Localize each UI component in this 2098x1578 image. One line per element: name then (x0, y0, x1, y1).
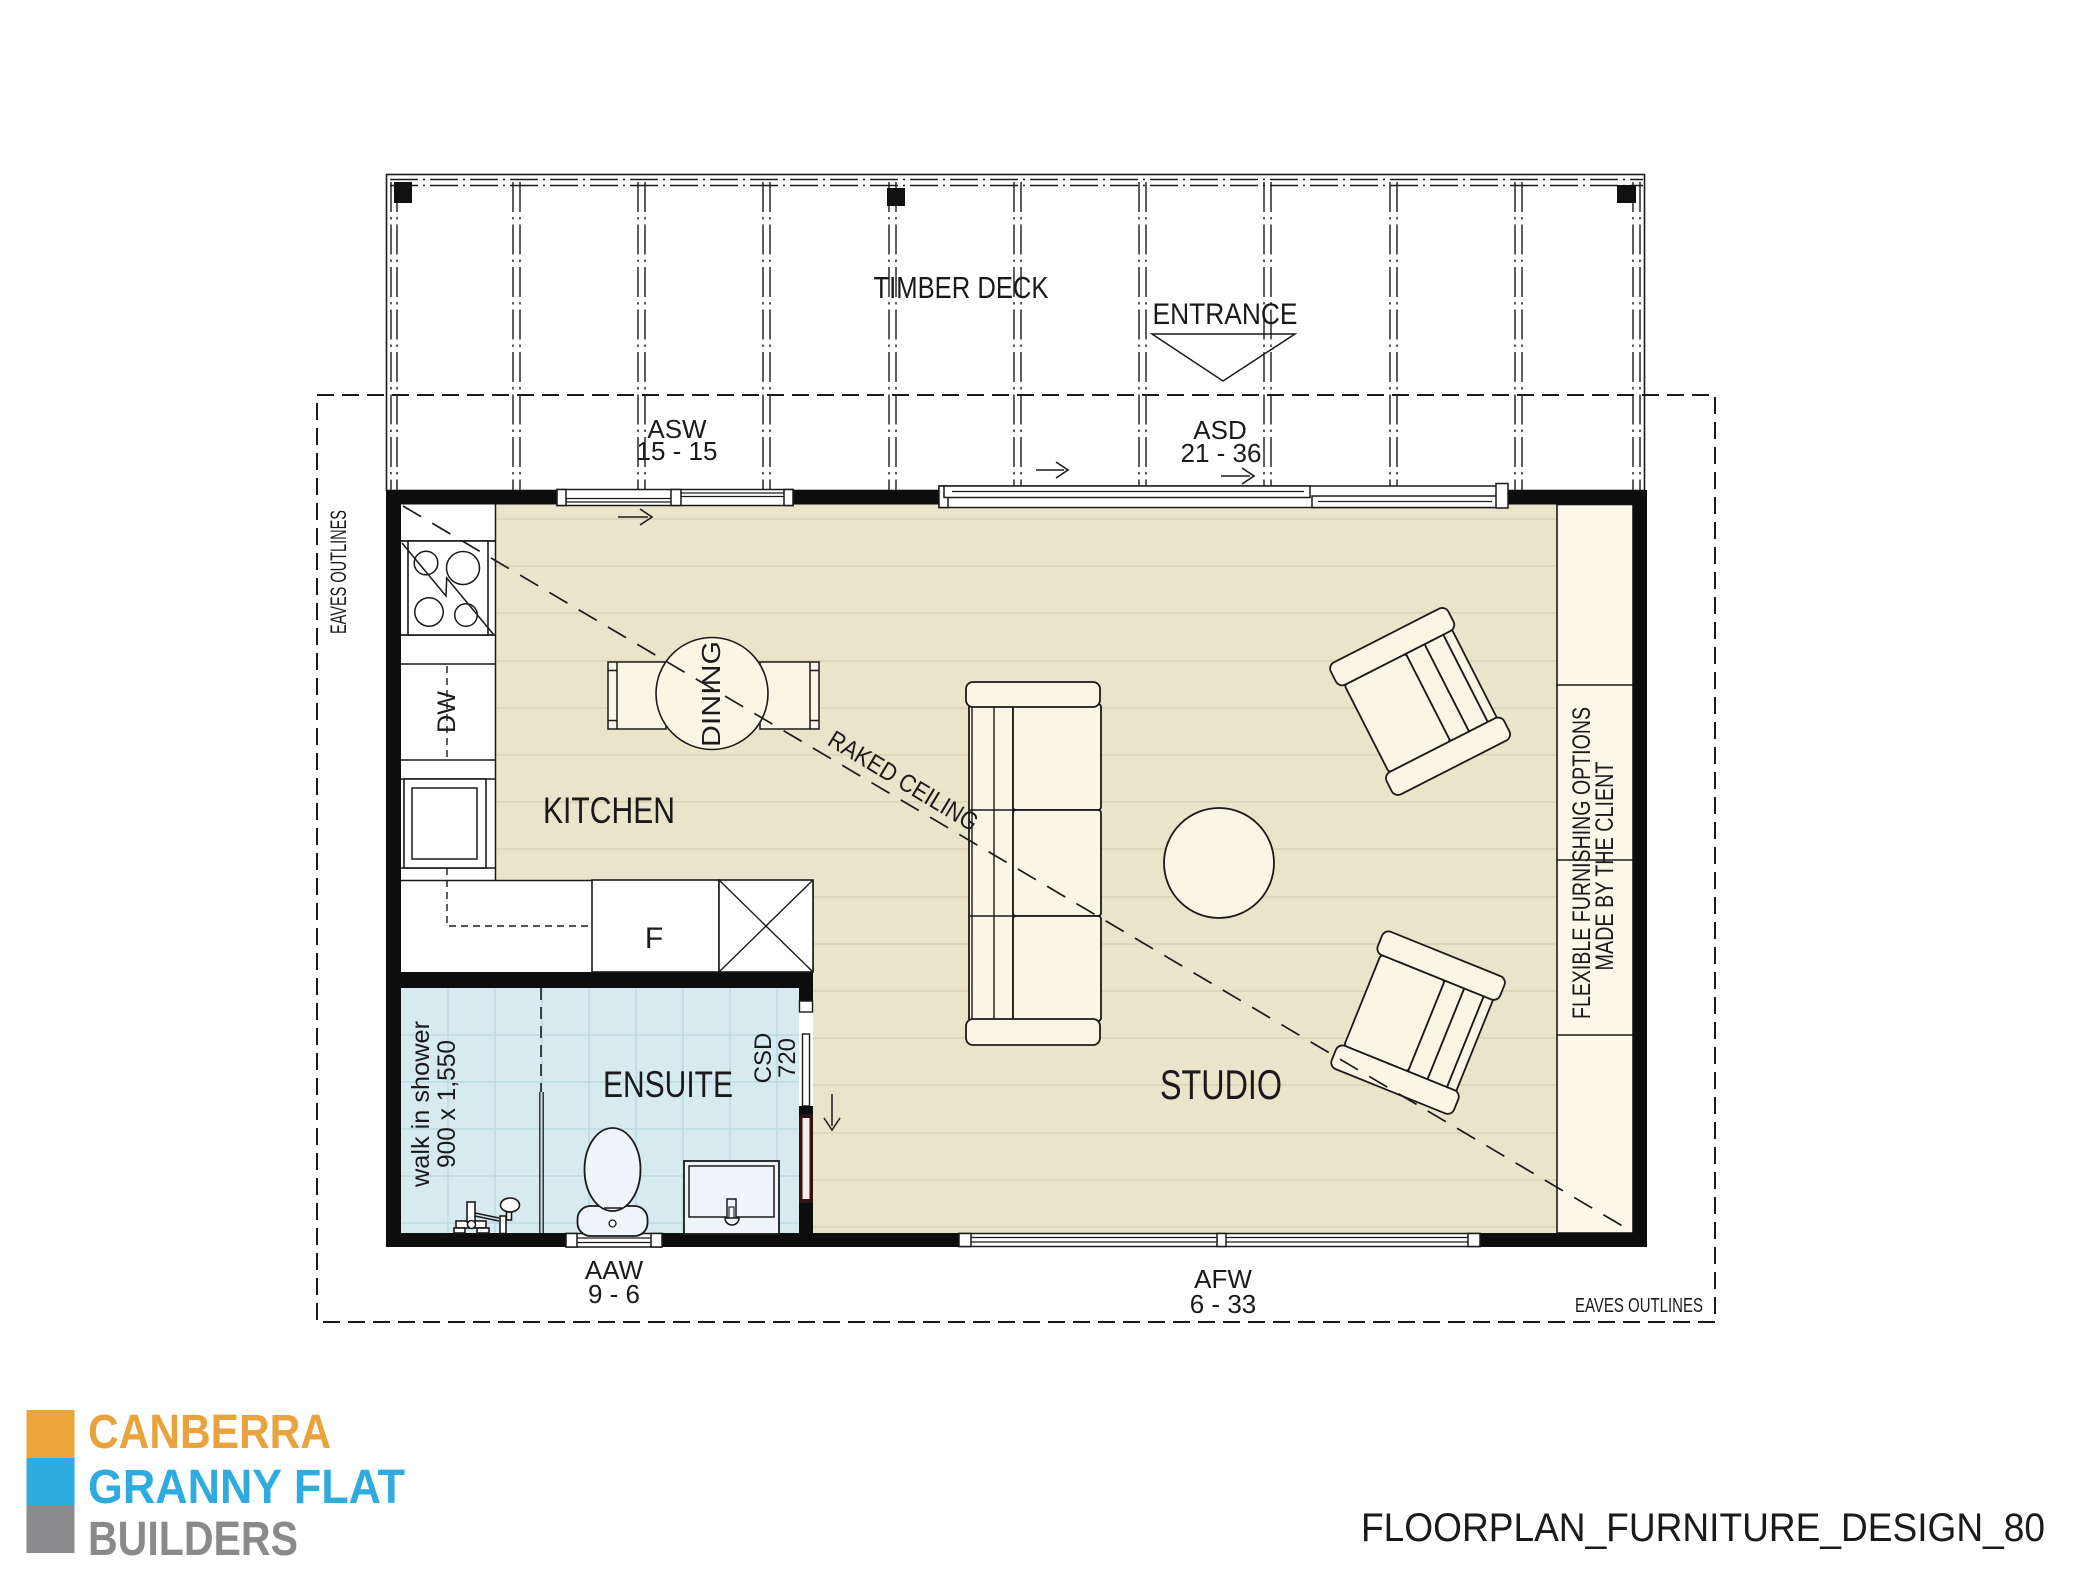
svg-text:DINING: DINING (696, 641, 726, 747)
svg-text:720: 720 (774, 1038, 801, 1078)
svg-text:BUILDERS: BUILDERS (88, 1513, 298, 1566)
svg-text:CSD: CSD (750, 1033, 777, 1084)
svg-text:MADE BY THE CLIENT: MADE BY THE CLIENT (1591, 762, 1619, 971)
svg-text:CANBERRA: CANBERRA (88, 1406, 331, 1459)
svg-text:TIMBER DECK: TIMBER DECK (874, 270, 1049, 305)
svg-text:EAVES OUTLINES: EAVES OUTLINES (326, 510, 351, 634)
svg-text:ENSUITE: ENSUITE (603, 1064, 733, 1105)
svg-text:21 - 36: 21 - 36 (1181, 438, 1262, 468)
svg-text:15 - 15: 15 - 15 (637, 436, 718, 466)
svg-text:6 - 33: 6 - 33 (1190, 1289, 1257, 1319)
svg-text:walk in shower: walk in shower (407, 1021, 435, 1188)
svg-text:GRANNY FLAT: GRANNY FLAT (88, 1461, 405, 1514)
svg-text:FLOORPLAN_FURNITURE_DESIGN_80: FLOORPLAN_FURNITURE_DESIGN_80 (1361, 1506, 2045, 1550)
svg-text:EAVES OUTLINES: EAVES OUTLINES (1575, 1295, 1703, 1317)
svg-text:9 - 6: 9 - 6 (588, 1279, 640, 1309)
svg-text:900 x 1,550: 900 x 1,550 (433, 1040, 461, 1168)
svg-text:KITCHEN: KITCHEN (543, 790, 675, 831)
svg-text:ENTRANCE: ENTRANCE (1153, 298, 1298, 331)
svg-text:DW: DW (433, 691, 461, 733)
svg-text:STUDIO: STUDIO (1160, 1061, 1282, 1108)
svg-text:F: F (645, 922, 663, 955)
